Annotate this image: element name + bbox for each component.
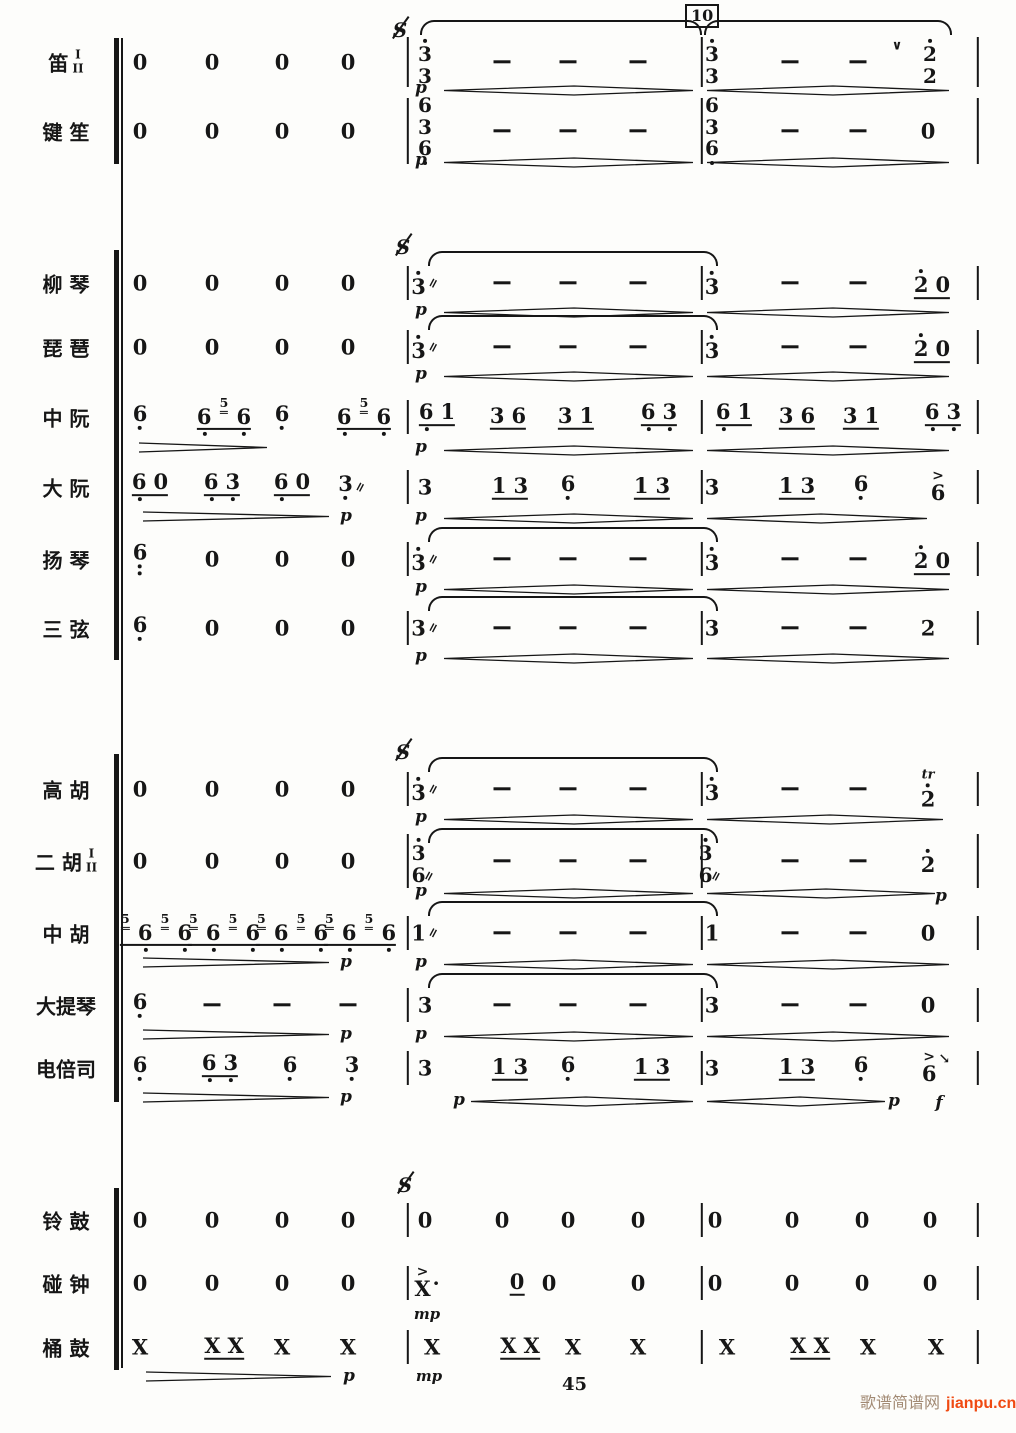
note-digit: 0 [341,1273,356,1294]
octave-dot [138,1077,142,1081]
dynamic-mark-p: p [415,881,427,901]
note-column: 0 [341,121,356,142]
group-bracket [114,38,119,164]
beamed-pair-token: 5656 [188,913,260,953]
staff-label-zhongruan: 中 阮 [20,403,112,432]
note-digit: X [340,1337,356,1358]
octave-dot [343,432,347,436]
slur-arc [428,973,718,988]
barline [407,611,409,645]
duration-dash [494,1003,511,1006]
note-column: 0 [275,779,290,800]
swell-hairpin [443,85,694,96]
dot-cell [738,426,752,433]
note-token: 0 [275,549,290,570]
note-column: 0 [631,1210,646,1231]
duration-dash-token [630,557,647,560]
note-column: 3 [843,405,858,426]
note-token: 0 [133,121,148,142]
hairpin-lines [707,446,949,455]
note-column: 3 [705,545,720,573]
note-token: 0 [205,121,220,142]
note-token: 3 [418,477,433,498]
diminuendo-hairpin [138,442,268,453]
note-column: 2 [914,543,929,571]
note-digit: 5 [365,913,374,930]
barline [701,916,703,950]
dynamic-mark-p: p [415,646,427,666]
barline [977,1203,979,1237]
duration-dash [850,859,867,862]
octave-dot [144,948,148,952]
staff-label-text: 笛 [48,48,68,77]
duration-dash [560,345,577,348]
note-column: 1 [779,1056,794,1077]
swell-hairpin [443,157,694,168]
octave-dot [348,948,352,952]
octave-dot [647,427,651,431]
dot-cell [296,496,310,503]
grace-note: 5 [324,913,335,930]
hairpin-lines [139,443,267,452]
note-token: X [630,1337,646,1358]
note-column: 0 [341,851,356,872]
grace-note: 5 [188,913,199,930]
note-digit: 0 [341,549,356,570]
dot-cell [257,946,268,953]
beamed-pair: 5656 [120,913,192,953]
swell-hairpin [443,445,694,456]
note-token: 6 [133,614,148,642]
note-token: 0 [205,52,220,73]
note-digit: 0 [205,273,220,294]
beamed-pair: 60 [132,471,168,503]
duration-dash-token [494,557,511,560]
swell-hairpin [443,513,694,524]
dot-cell [154,496,168,503]
note-digit: 0 [275,851,290,872]
note-column: 2 [921,847,936,875]
duration-dash [560,859,577,862]
note-token: 0 [631,1210,646,1231]
chord-token: 36= [699,836,726,886]
note-digit: 0 [133,779,148,800]
note-token: 0 [133,851,148,872]
note-digit: 0 [785,1210,800,1231]
grace-note: 5 [359,397,370,414]
diminuendo-hairpin [142,1092,330,1103]
note-digit: 5 [121,913,130,930]
duration-dash [782,931,799,934]
note-digit: 0 [936,550,951,571]
note-digit: 3 [705,1058,720,1079]
note-digit: 2 [914,274,929,295]
note-token: 0 [205,273,220,294]
staff-label-zhonghu: 中 胡 [20,919,112,948]
note-digit: 0 [341,52,356,73]
duration-dash-token [782,626,799,629]
note-column: 6 [133,991,148,1019]
pair-row: 13 [492,475,528,500]
note-column: 3 [947,401,962,422]
duration-dash-token [560,859,577,862]
beamed-pair: 63 [202,1052,238,1084]
note-column: 0 [205,121,220,142]
barline [407,988,409,1022]
staff-label-text: 键 笙 [43,117,90,146]
octave-dot [931,427,935,431]
note-digit: 1 [441,401,456,422]
dot-cell [207,946,221,953]
note-column: 0 [133,1210,148,1231]
note-digit: 6 [133,614,148,635]
slur-arc [428,527,718,542]
staff-label-text: 中 阮 [43,403,90,432]
note-token: 0 [133,1210,148,1231]
duration-dash-token [494,626,511,629]
pair-octave-dots [420,426,455,433]
barline [977,1266,979,1300]
note-column: 6 [274,471,289,492]
note-column: 0 [275,337,290,358]
watermark-domain-link[interactable]: jianpu.cn [946,1395,1016,1412]
octave-dot [859,496,863,500]
note-digit: X [630,1337,646,1358]
note-digit: 3 [418,1058,433,1079]
barline [701,470,703,504]
note-digit: 3 [705,782,720,803]
note-digit: 6 [133,403,148,424]
note-digit: 6 [854,1054,869,1075]
note-token: 2 [921,847,936,875]
note-digit: 3 [514,1056,529,1077]
pair-row: 63 [925,401,961,426]
beamed-pair: 20 [914,267,950,299]
slur-arc [428,757,718,772]
note-digit: 0 [936,338,951,359]
note-column: 0 [275,618,290,639]
duration-dash [630,281,647,284]
beamed-pair-token: 13 [492,475,528,500]
dot-cell [377,430,391,437]
note-digit: 5 [297,913,306,930]
note-digit: 0 [341,1210,356,1231]
note-column: 0 [275,1210,290,1231]
barline [701,1051,703,1085]
swell-hairpin [443,959,694,970]
slur-arc [428,315,718,330]
dot-cell [663,426,677,433]
staff-label-erhu: 二 胡III [20,847,112,876]
note-column: 6 [132,471,147,492]
duration-dash [782,345,799,348]
note-token: 0 [341,121,356,142]
note-digit: 2 [921,618,936,639]
barline [977,400,979,434]
note-column: 0 [275,549,290,570]
hairpin-lines [707,1032,949,1041]
note-digit: 6 [138,921,153,942]
duration-dash [782,129,799,132]
staff-label-text: 大提琴 [36,991,96,1020]
beamed-pair-token: 61 [419,401,455,433]
slur-arc [704,20,952,35]
duration-dash-token [204,1003,221,1006]
note-column: 0 [296,471,311,492]
beamed-pair: XX [790,1335,830,1360]
note-token: 0 [275,121,290,142]
note-column: 0 [510,1271,525,1296]
barline [977,266,979,300]
pair-octave-dots [205,496,240,503]
swell-hairpin [706,1096,886,1107]
beamed-pair-token: 31 [843,405,879,430]
duration-dash-token [630,859,647,862]
hairpin-lines [444,889,693,898]
note-digit: 3 [705,618,720,639]
barline [701,988,703,1022]
beamed-pair-token: 20 [914,543,950,575]
note-column: 3 [411,775,426,803]
note-token: 3 [705,1058,720,1079]
dynamic-mark-p: p [453,1090,465,1110]
note-column: 3 [656,1056,671,1077]
note-digit: 5 [229,913,238,930]
note-token: 0 [133,779,148,800]
note-column: 3 [705,333,720,361]
note-column: 6 [237,405,252,426]
note-digit: 0 [510,1271,525,1296]
staff-label-gaohu: 高 胡 [20,775,112,804]
note-token: 3 [705,775,720,803]
note-column: 1 [705,923,720,944]
note-digit: 3 [663,401,678,422]
note-digit: 2 [914,550,929,571]
note-digit: 3 [224,1052,239,1073]
note-digit: 6 [382,921,397,942]
note-digit: 0 [921,121,936,142]
note-column: 1 [492,475,507,496]
note-column: 3 [411,269,426,297]
staff-label-ebass: 电倍司 [20,1054,112,1083]
note-digit: 3 [411,618,426,639]
dynamic-mark-p: p [340,1024,352,1044]
dynamic-mark-mp: mp [414,1305,440,1323]
note-digit: 3 [705,477,720,498]
note-digit: 3 [705,276,720,297]
hairpin-lines [707,1097,885,1106]
note-digit: 0 [341,121,356,142]
note-token: tr2 [921,768,936,809]
staff-label-text: 铃 鼓 [43,1206,90,1235]
duration-dash-token [782,129,799,132]
pair-row: 61 [716,401,752,426]
note-digit: 3 [705,552,720,573]
note-token: 3 [418,995,433,1016]
note-column: 3 [490,405,505,426]
note-digit: 0 [495,1210,510,1231]
barline [407,772,409,806]
note-digit: 0 [341,618,356,639]
note-digit: 0 [133,121,148,142]
duration-dash-token [850,345,867,348]
note-digit: 0 [631,1273,646,1294]
note-digit: X [860,1337,876,1358]
note-column: X [928,1337,944,1358]
note-token: X [132,1337,148,1358]
note-column: 3 [656,475,671,496]
note-digit: 5 [161,913,170,930]
note-column: 0 [341,549,356,570]
barline [977,330,979,364]
note-column: 0 [205,273,220,294]
duration-dash [782,60,799,63]
pair-row: 60 [132,471,168,496]
note-digit: 6 [716,401,731,422]
note-digit: X [204,1335,220,1356]
duration-dash-token [494,787,511,790]
note-digit: 6 [931,482,946,503]
duration-dash-token [850,931,867,934]
grace-note: 5 [296,913,307,930]
pair-octave-dots [275,496,310,503]
group-bracket [114,250,119,660]
staff-label-daruan: 大 阮 [20,473,112,502]
note-digit: 0 [418,1210,433,1231]
watermark-site-name: 歌谱简谱网 [860,1395,940,1412]
note-digit: 0 [205,549,220,570]
duration-dash [850,626,867,629]
note-column: 6 [133,614,148,642]
barline [701,611,703,645]
beamed-pair: 63 [641,401,677,433]
note-token: 0 [921,923,936,944]
note-column: X [424,1337,440,1358]
hairpin-lines [707,889,935,898]
note-column: 0 [708,1273,723,1294]
tremolo-mark: = [424,275,442,292]
duration-dash [630,557,647,560]
note-token: X [274,1337,290,1358]
note-digit: 1 [492,1056,507,1077]
note-digit: 6 [925,401,940,422]
note-column: 0 [205,52,220,73]
note-digit: X [500,1335,516,1356]
dynamic-mark-p: p [888,1091,900,1111]
barline [977,916,979,950]
note-digit: 2 [914,338,929,359]
note-token: 0 [205,851,220,872]
hairpin-lines [143,1030,329,1039]
pair-row: 63 [204,471,240,496]
octave-dot [280,426,284,430]
duration-dash [494,626,511,629]
staff-label-text: 高 胡 [43,775,90,804]
note-column: 3 [226,471,241,492]
beamed-pair-token: 20 [914,331,950,363]
staff-label-text: 电倍司 [36,1054,96,1083]
pair-row: 13 [779,1056,815,1081]
note-token: 3 [705,995,720,1016]
note-digit: 0 [923,1273,938,1294]
octave-dot [242,432,246,436]
note-token: 0 [275,1210,290,1231]
barline [977,470,979,504]
barline [407,1051,409,1085]
note-column: 6 [133,541,148,576]
note-column: X [630,1337,646,1358]
beamed-pair: 20 [914,543,950,575]
pair-row: XX [204,1335,244,1360]
diminuendo-hairpin [142,957,330,968]
hairpin-lines [143,1093,329,1102]
beamed-pair-token: 31 [558,405,594,430]
diminuendo-hairpin [142,511,330,522]
note-token: 0 [495,1210,510,1231]
note-token: 0 [275,337,290,358]
duration-dash-token [782,345,799,348]
chord-digit: 3 [418,117,432,139]
tremolo-mark: = [424,925,442,942]
note-column: 0 [785,1273,800,1294]
note-token: >X· [414,1267,439,1299]
note-digit: 0 [275,121,290,142]
barline [701,1266,703,1300]
beamed-pair-token: 13 [492,1056,528,1081]
duration-dash [782,626,799,629]
beamed-pair: 31 [843,405,879,430]
note-token: 3 [705,618,720,639]
group-bracket [114,754,119,1102]
beamed-pair: 13 [492,475,528,500]
hairpin-lines [707,585,949,594]
pair-row: 13 [779,475,815,500]
chord-token: 33 [705,37,719,87]
note-digit: 1 [738,401,753,422]
note-token: 0 [341,337,356,358]
note-digit: 0 [631,1210,646,1231]
beamed-pair: 63 [204,471,240,503]
note-column: 6 [419,401,434,422]
duration-dash-token [850,60,867,63]
note-digit: 1 [865,405,880,426]
beamed-pair: 5656 [188,913,260,953]
note-digit: 3 [801,475,816,496]
note-column: 0 [341,618,356,639]
note-digit: 3 [558,405,573,426]
note-column: 3 [705,775,720,803]
swell-hairpin [706,1031,950,1042]
swell-hairpin [706,653,950,664]
barline [977,1051,979,1085]
note-token: 0 [921,121,936,142]
beamed-pair-token: 36 [490,405,526,430]
swell-hairpin [706,445,950,456]
octave-dot [138,1014,142,1018]
swell-hairpin [443,584,694,595]
duration-dash [850,129,867,132]
barline [407,470,409,504]
pair-row: 63 [641,401,677,426]
note-token: 0 [205,1210,220,1231]
duration-dash [494,787,511,790]
duration-dash [782,859,799,862]
segno-token: S [396,235,410,259]
duration-dash-token [494,60,511,63]
note-column: 3 [705,269,720,297]
note-token: 0 [205,337,220,358]
barline [701,772,703,806]
